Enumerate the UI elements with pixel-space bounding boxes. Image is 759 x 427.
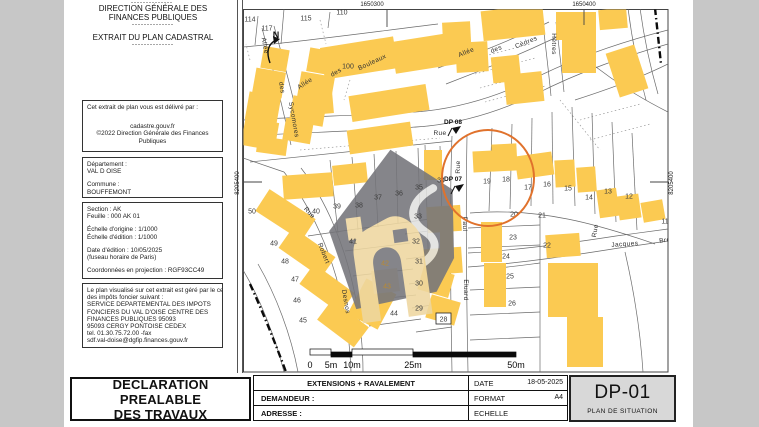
parcel-number-23: 23: [509, 235, 517, 242]
grid-coordinate: 8205400: [669, 171, 675, 195]
watermark-window: [393, 228, 409, 243]
sheet-name: PLAN DE SITUATION: [587, 408, 658, 415]
street-label: des: [490, 44, 504, 55]
parcel-number-17: 17: [524, 185, 532, 192]
dp-marker-icon: [455, 184, 464, 192]
grid-coordinate: 1650300: [360, 2, 384, 8]
building: [484, 263, 506, 307]
scale-label: 50m: [507, 360, 525, 370]
date-label: DATE: [474, 379, 493, 388]
building: [576, 166, 597, 192]
parcel-number-11: 11: [661, 219, 668, 226]
parcel-number-28: 28: [440, 317, 448, 324]
building: [554, 159, 575, 187]
scale-bar: [331, 352, 352, 357]
building: [548, 263, 598, 317]
grid-coordinate: 8205400: [235, 171, 241, 195]
cadastral-map: 1141171151101005049484746454039383736353…: [0, 0, 759, 427]
parcel-number-100: 100: [342, 64, 354, 71]
format-label: FORMAT: [474, 394, 505, 403]
street-label: Rue: [455, 160, 462, 173]
dp-marker-label: DP 07: [444, 176, 462, 183]
format-value: A4: [505, 394, 563, 403]
parcel-number-45: 45: [299, 318, 307, 325]
parcel-boundary: [281, 9, 284, 44]
parcel-boundary: [572, 107, 575, 206]
parcel-number-31: 31: [415, 259, 423, 266]
project-title-box: DECLARATION PREALABLE DES TRAVAUX: [70, 377, 251, 421]
building: [491, 143, 517, 171]
scale-bar: [310, 349, 331, 355]
parcel-boundary: [466, 136, 468, 372]
date-cell: DATE 18-05-2025: [468, 376, 568, 391]
scale-label: 5m: [325, 360, 338, 370]
sheet-code: DP-01: [594, 382, 650, 404]
building: [606, 44, 649, 97]
building: [472, 150, 493, 172]
project-title-line2: DES TRAVAUX: [114, 407, 207, 422]
scale-label: 0: [307, 360, 312, 370]
parcel-boundary: [470, 312, 540, 315]
parcel-number-35: 35: [415, 185, 423, 192]
building: [282, 172, 334, 199]
parcel-number-25: 25: [506, 274, 514, 281]
parcel-number-16: 16: [543, 182, 551, 189]
parcel-number-115: 115: [300, 16, 311, 23]
parcel-number-48: 48: [281, 259, 289, 266]
parcel-number-13: 13: [604, 189, 612, 196]
scale-label: 25m: [404, 360, 422, 370]
fence-line: [320, 20, 326, 44]
building: [562, 39, 596, 73]
building: [481, 222, 502, 262]
building: [332, 162, 368, 185]
parcel-boundary: [552, 112, 553, 204]
parcel-boundary: [243, 270, 284, 372]
dp-marker-icon: [448, 128, 452, 136]
street-label: Jacques: [611, 240, 639, 249]
parcel-number-46: 46: [293, 298, 301, 305]
parcel-number-42: 42: [381, 261, 389, 268]
sheet-code-box: DP-01 PLAN DE SITUATION: [569, 375, 676, 422]
scale-bar: [413, 352, 516, 357]
parcel-number-38: 38: [355, 203, 363, 210]
parcel-number-19: 19: [483, 179, 491, 186]
date-value: 18-05-2025: [493, 379, 563, 388]
echelle-cell: ECHELLE: [468, 406, 568, 420]
parcel-number-24: 24: [502, 254, 510, 261]
demandeur-cell: DEMANDEUR :: [254, 391, 468, 406]
parcel-number-26: 26: [508, 301, 516, 308]
parcel-number-29: 29: [415, 306, 423, 313]
cadastral-extract-document: -------------- DIRECTION GÉNÉRALE DES FI…: [0, 0, 759, 427]
parcel-number-32: 32: [412, 239, 420, 246]
commune-boundary: [655, 8, 661, 64]
parcel-number-33: 33: [414, 214, 422, 221]
building: [598, 8, 628, 30]
parcel-number-18: 18: [502, 177, 510, 184]
street-label: Brel: [659, 236, 673, 245]
parcel-number-14: 14: [585, 195, 593, 202]
title-block-table: EXTENSIONS + RAVALEMENT DEMANDEUR : ADRE…: [253, 375, 568, 421]
adresse-cell: ADRESSE :: [254, 406, 468, 420]
building: [347, 122, 414, 155]
street-label: Rue: [433, 130, 446, 137]
parcel-number-21: 21: [538, 213, 546, 220]
parcel-number-110: 110: [336, 10, 347, 17]
parcel-number-30: 30: [415, 281, 423, 288]
parcel-number-15: 15: [564, 186, 572, 193]
parcel-number-117: 117: [261, 26, 272, 33]
parcel-number-44: 44: [390, 311, 398, 318]
parcel-boundary: [416, 327, 452, 332]
building: [556, 12, 596, 40]
fence-line: [590, 124, 650, 140]
building: [310, 91, 334, 115]
parcel-boundary: [625, 252, 643, 372]
grid-coordinate: 1650400: [572, 2, 596, 8]
building: [348, 84, 429, 122]
scale-label: 10m: [343, 360, 361, 370]
street-label: Rue: [591, 224, 600, 238]
parcel-number-114: 114: [244, 17, 255, 24]
parcel-number-22: 22: [543, 243, 551, 250]
building: [504, 71, 545, 105]
map-content: 1141171151101005049484746454039383736353…: [241, 5, 673, 372]
parcel-number-47: 47: [291, 277, 299, 284]
parcel-number-43: 43: [383, 284, 391, 291]
fence-line: [560, 100, 600, 150]
parcel-number-12: 12: [625, 194, 633, 201]
parcel-boundary: [470, 337, 540, 340]
project-title-line1: DECLARATION PREALABLE: [72, 377, 249, 407]
format-cell: FORMAT A4: [468, 391, 568, 406]
dp-marker-icon: [452, 126, 461, 134]
dp-marker-label: DP 08: [444, 119, 462, 126]
parcel-number-39: 39: [333, 204, 341, 211]
parcel-number-41: 41: [349, 239, 357, 246]
street-label: Eluard: [462, 279, 469, 300]
scale-bar: [352, 349, 413, 355]
parcel-number-36: 36: [395, 191, 403, 198]
fence-line: [580, 104, 640, 120]
parcel-number-49: 49: [270, 241, 278, 248]
works-cell: EXTENSIONS + RAVALEMENT: [254, 376, 468, 391]
parcel-number-50: 50: [248, 209, 256, 216]
parcel-boundary: [328, 12, 330, 28]
parcel-number-37: 37: [374, 195, 382, 202]
parcel-boundary: [243, 158, 284, 172]
building: [567, 317, 603, 367]
echelle-label: ECHELLE: [474, 409, 508, 418]
echelle-value: [508, 409, 563, 418]
street-label: Hêtres: [550, 33, 557, 55]
